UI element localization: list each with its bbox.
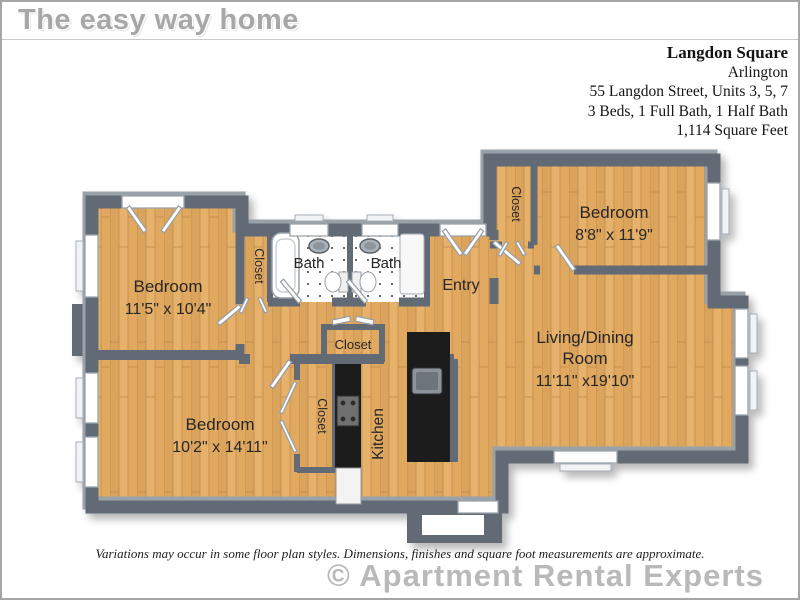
living-upper-floor-b (494, 270, 714, 304)
right-counter (407, 332, 450, 462)
burner (351, 401, 356, 406)
bedroom2-label: Bedroom (580, 203, 649, 222)
bath1-toilet (325, 272, 341, 292)
closet4-label: Closet (315, 398, 329, 434)
bedroom1-door-opening (122, 196, 184, 208)
burner (351, 417, 356, 422)
bath1-window (290, 224, 328, 236)
bath2-window (362, 224, 398, 236)
bedroom3-label: Bedroom (186, 415, 255, 434)
bath1-label: Bath (294, 255, 325, 272)
floorplan-flyer: The easy way home Langdon Square Arlingt… (0, 0, 800, 600)
closet3-label: Closet (335, 337, 372, 352)
living-label-line2: Room (562, 349, 607, 368)
living-label-line1: Living/Dining (536, 328, 633, 347)
closet2-label: Closet (509, 186, 523, 222)
bedroom1-dims: 11'5" x 10'4" (125, 301, 212, 318)
bedroom2-dims: 8'8" x 11'9" (575, 227, 653, 244)
bedroom1-label: Bedroom (134, 277, 203, 296)
living-window-2 (735, 366, 748, 415)
closet1-label: Closet (252, 248, 266, 284)
entry-label: Entry (442, 277, 479, 294)
kitchen-label: Kitchen (370, 408, 387, 460)
stove (337, 396, 359, 426)
dishwasher (336, 468, 361, 504)
living-bay-window (554, 451, 617, 463)
bedroom2-window (707, 183, 720, 240)
burner (341, 401, 346, 406)
bath2-toilet (360, 272, 376, 292)
plan-group: Bedroom 11'5" x 10'4" Bedroom 8'8" x 11'… (72, 156, 757, 543)
bedroom3-window-1 (85, 373, 98, 423)
bedroom3-dims: 10'2" x 14'11" (172, 439, 267, 456)
bedroom3-window-2 (85, 437, 98, 487)
bedroom1-window (85, 235, 98, 297)
living-dims: 11'11" x19'10" (536, 373, 635, 390)
bath2-label: Bath (371, 255, 402, 272)
watermark: © Apartment Rental Experts (327, 558, 764, 594)
floor-plan: Bedroom 11'5" x 10'4" Bedroom 8'8" x 11'… (2, 2, 800, 600)
shower (400, 234, 424, 294)
back-door-opening (458, 501, 498, 513)
burner (341, 417, 346, 422)
living-window-1 (735, 309, 748, 358)
